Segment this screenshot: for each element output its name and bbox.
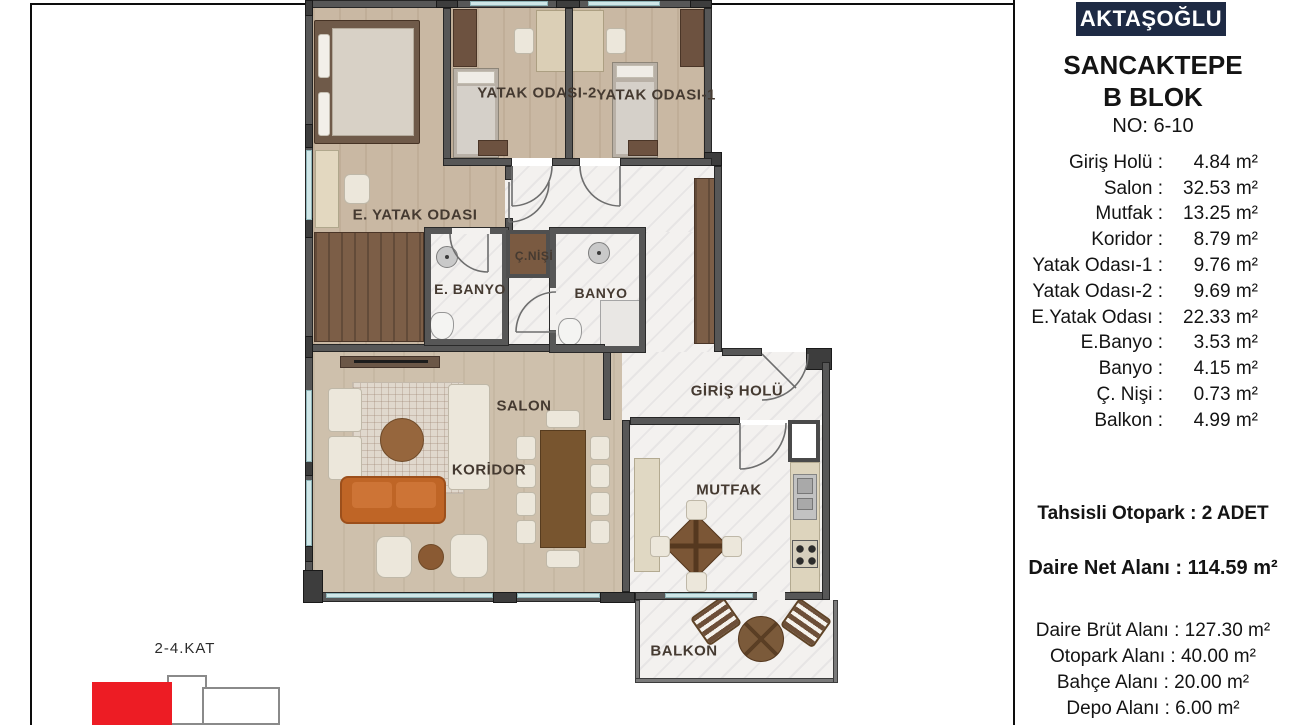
room-area-row: Yatak Odası-1 :9.76 m² <box>1020 253 1286 279</box>
floor-plan-page: YATAK ODASI-2 YATAK ODASI-1 E. YATAK ODA… <box>0 0 1290 725</box>
room-area-value: 3.53 m² <box>1163 332 1258 354</box>
room-area-label: E.Yatak Odası : <box>1031 307 1163 329</box>
room-area-value: 13.25 m² <box>1163 203 1258 225</box>
room-area-row: Salon :32.53 m² <box>1020 176 1286 202</box>
room-area-label: Salon : <box>1104 178 1163 200</box>
key-unit-outline-large <box>202 687 280 725</box>
door-swing-arcs <box>450 166 808 469</box>
room-area-row: Giriş Holü :4.84 m² <box>1020 150 1286 176</box>
extra-area-list: Daire Brüt Alanı : 127.30 m²Otopark Alan… <box>1020 620 1286 724</box>
key-unit-outline-small <box>167 675 207 725</box>
room-area-row: E.Yatak Odası :22.33 m² <box>1020 305 1286 331</box>
area-summary-line: Daire Brüt Alanı : 127.30 m² <box>1020 620 1286 646</box>
room-area-value: 32.53 m² <box>1163 178 1258 200</box>
net-area-total: Daire Net Alanı : 114.59 m² <box>1020 557 1286 580</box>
room-area-value: 4.15 m² <box>1163 358 1258 380</box>
key-unit-highlighted <box>92 682 172 725</box>
room-area-label: Giriş Holü : <box>1069 152 1163 174</box>
label-balcony: BALKON <box>650 643 717 660</box>
room-area-label: Banyo : <box>1099 358 1163 380</box>
room-area-row: E.Banyo :3.53 m² <box>1020 331 1286 357</box>
label-entrance-hall: GİRİŞ HOLÜ <box>691 383 784 400</box>
room-area-value: 4.99 m² <box>1163 410 1258 432</box>
label-ensuite-bath: E. BANYO <box>434 281 506 297</box>
label-living-room: SALON <box>497 398 552 415</box>
label-bedroom1: YATAK ODASI-1 <box>596 87 716 104</box>
room-area-label: E.Banyo : <box>1081 332 1163 354</box>
room-area-value: 22.33 m² <box>1163 307 1258 329</box>
apartment-floor-plan: YATAK ODASI-2 YATAK ODASI-1 E. YATAK ODA… <box>0 0 1014 725</box>
area-summary-line: Otopark Alanı : 40.00 m² <box>1020 646 1286 672</box>
room-area-row: Banyo :4.15 m² <box>1020 356 1286 382</box>
room-area-row: Koridor :8.79 m² <box>1020 227 1286 253</box>
room-area-label: Balkon : <box>1094 410 1163 432</box>
area-summary-line: Bahçe Alanı : 20.00 m² <box>1020 672 1286 698</box>
label-bedroom2: YATAK ODASI-2 <box>477 85 597 102</box>
room-area-value: 9.69 m² <box>1163 281 1258 303</box>
room-area-value: 8.79 m² <box>1163 229 1258 251</box>
room-area-row: Ç. Nişi :0.73 m² <box>1020 382 1286 408</box>
room-area-label: Koridor : <box>1091 229 1163 251</box>
room-area-row: Mutfak :13.25 m² <box>1020 202 1286 228</box>
area-summary-line: Depo Alanı : 6.00 m² <box>1020 698 1286 724</box>
room-area-value: 9.76 m² <box>1163 255 1258 277</box>
room-area-label: Yatak Odası-1 : <box>1032 255 1163 277</box>
room-area-list: Giriş Holü :4.84 m²Salon :32.53 m²Mutfak… <box>1020 150 1286 434</box>
room-area-value: 4.84 m² <box>1163 152 1258 174</box>
door-arcs <box>0 0 1014 725</box>
parking-allocation: Tahsisli Otopark : 2 ADET <box>1020 503 1286 525</box>
brand-logo: AKTAŞOĞLU <box>1076 2 1226 36</box>
floor-key-label: 2-4.KAT <box>130 640 240 657</box>
room-area-label: Mutfak : <box>1095 203 1163 225</box>
label-bath: BANYO <box>574 285 627 301</box>
block-name: B BLOK <box>1020 82 1286 113</box>
room-area-label: Yatak Odası-2 : <box>1032 281 1163 303</box>
label-corridor: KORİDOR <box>452 462 526 479</box>
room-area-row: Balkon :4.99 m² <box>1020 408 1286 434</box>
label-master-bedroom: E. YATAK ODASI <box>353 207 478 224</box>
label-chimney-niche: Ç.NİŞİ <box>515 249 553 263</box>
room-area-row: Yatak Odası-2 :9.69 m² <box>1020 279 1286 305</box>
room-area-label: Ç. Nişi : <box>1097 384 1164 406</box>
unit-number: NO: 6-10 <box>1020 115 1286 138</box>
room-area-value: 0.73 m² <box>1163 384 1258 406</box>
label-kitchen: MUTFAK <box>696 482 762 499</box>
project-name: SANCAKTEPE <box>1020 50 1286 81</box>
